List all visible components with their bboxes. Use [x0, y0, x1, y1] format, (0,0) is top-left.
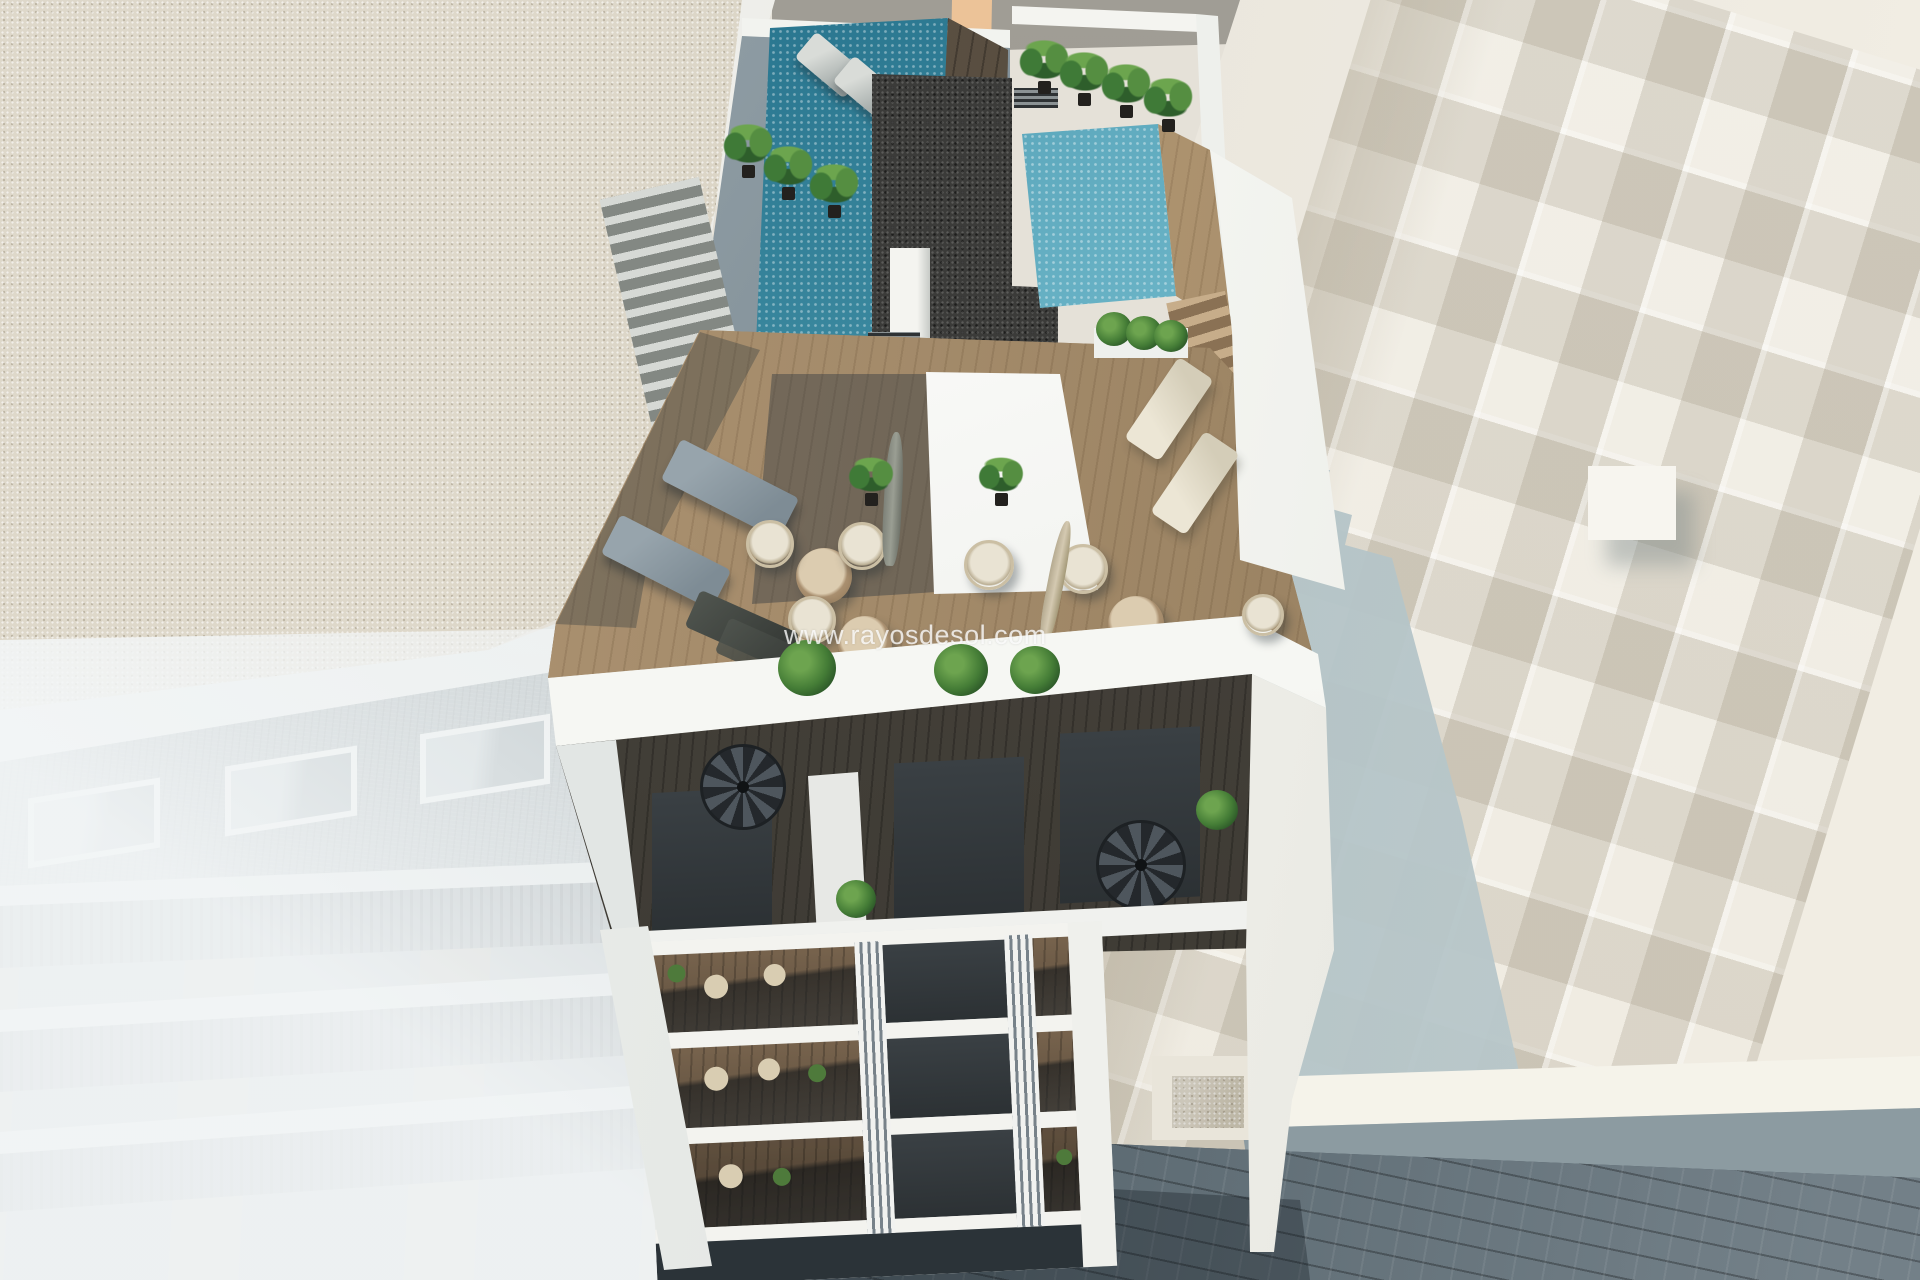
- balcony-cell-f1-right: [1032, 937, 1072, 1017]
- rooftop-plant-7: [1136, 72, 1200, 132]
- parapet-bush-2: [934, 644, 988, 696]
- patio-plant-2: [1196, 790, 1238, 830]
- balcony-cell-f3-right: [1041, 1126, 1081, 1212]
- wicker-chair-1: [746, 520, 794, 568]
- spiral-staircase-1: [700, 744, 786, 830]
- balcony-cell-f2-right: [1036, 1031, 1076, 1113]
- parapet-bush-3: [1010, 646, 1060, 694]
- architectural-render-scene: www.rayosdesol.com: [0, 0, 1920, 1280]
- patio-plant-1: [836, 880, 876, 918]
- patio-glazing-2: [894, 757, 1024, 924]
- recess-cell-f1: [882, 940, 1007, 1023]
- roof-chimney: [890, 248, 930, 342]
- balcony-cell-f1-left: [651, 946, 858, 1033]
- spiral-staircase-2: [1096, 820, 1186, 910]
- wicker-chair-7: [1242, 594, 1284, 636]
- wicker-chair-2: [838, 522, 886, 570]
- terrace-palm-2: [972, 452, 1030, 506]
- right-lower-roof-gravel: [1172, 1076, 1244, 1128]
- rooftop-plant-3: [802, 158, 866, 218]
- right-rooftop-box: [1588, 466, 1676, 540]
- deck-planter-bush-3: [1154, 320, 1188, 352]
- lower-facade: [642, 921, 1117, 1280]
- watermark: www.rayosdesol.com: [784, 620, 1064, 651]
- wicker-chair-4: [964, 540, 1014, 590]
- recess-cell-f2: [887, 1033, 1013, 1118]
- terrace-palm-1: [842, 452, 900, 506]
- recess-cell-f3: [891, 1129, 1017, 1218]
- balcony-cell-f2-left: [655, 1040, 862, 1129]
